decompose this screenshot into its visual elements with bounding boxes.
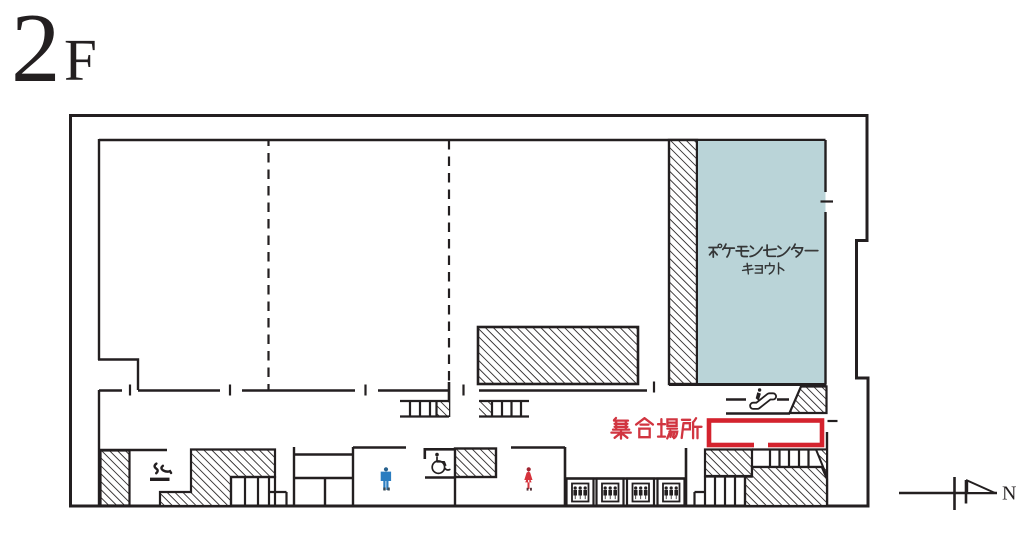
svg-text:2: 2 (11, 0, 61, 103)
svg-text:F: F (64, 27, 97, 93)
svg-text:N: N (1002, 483, 1016, 505)
